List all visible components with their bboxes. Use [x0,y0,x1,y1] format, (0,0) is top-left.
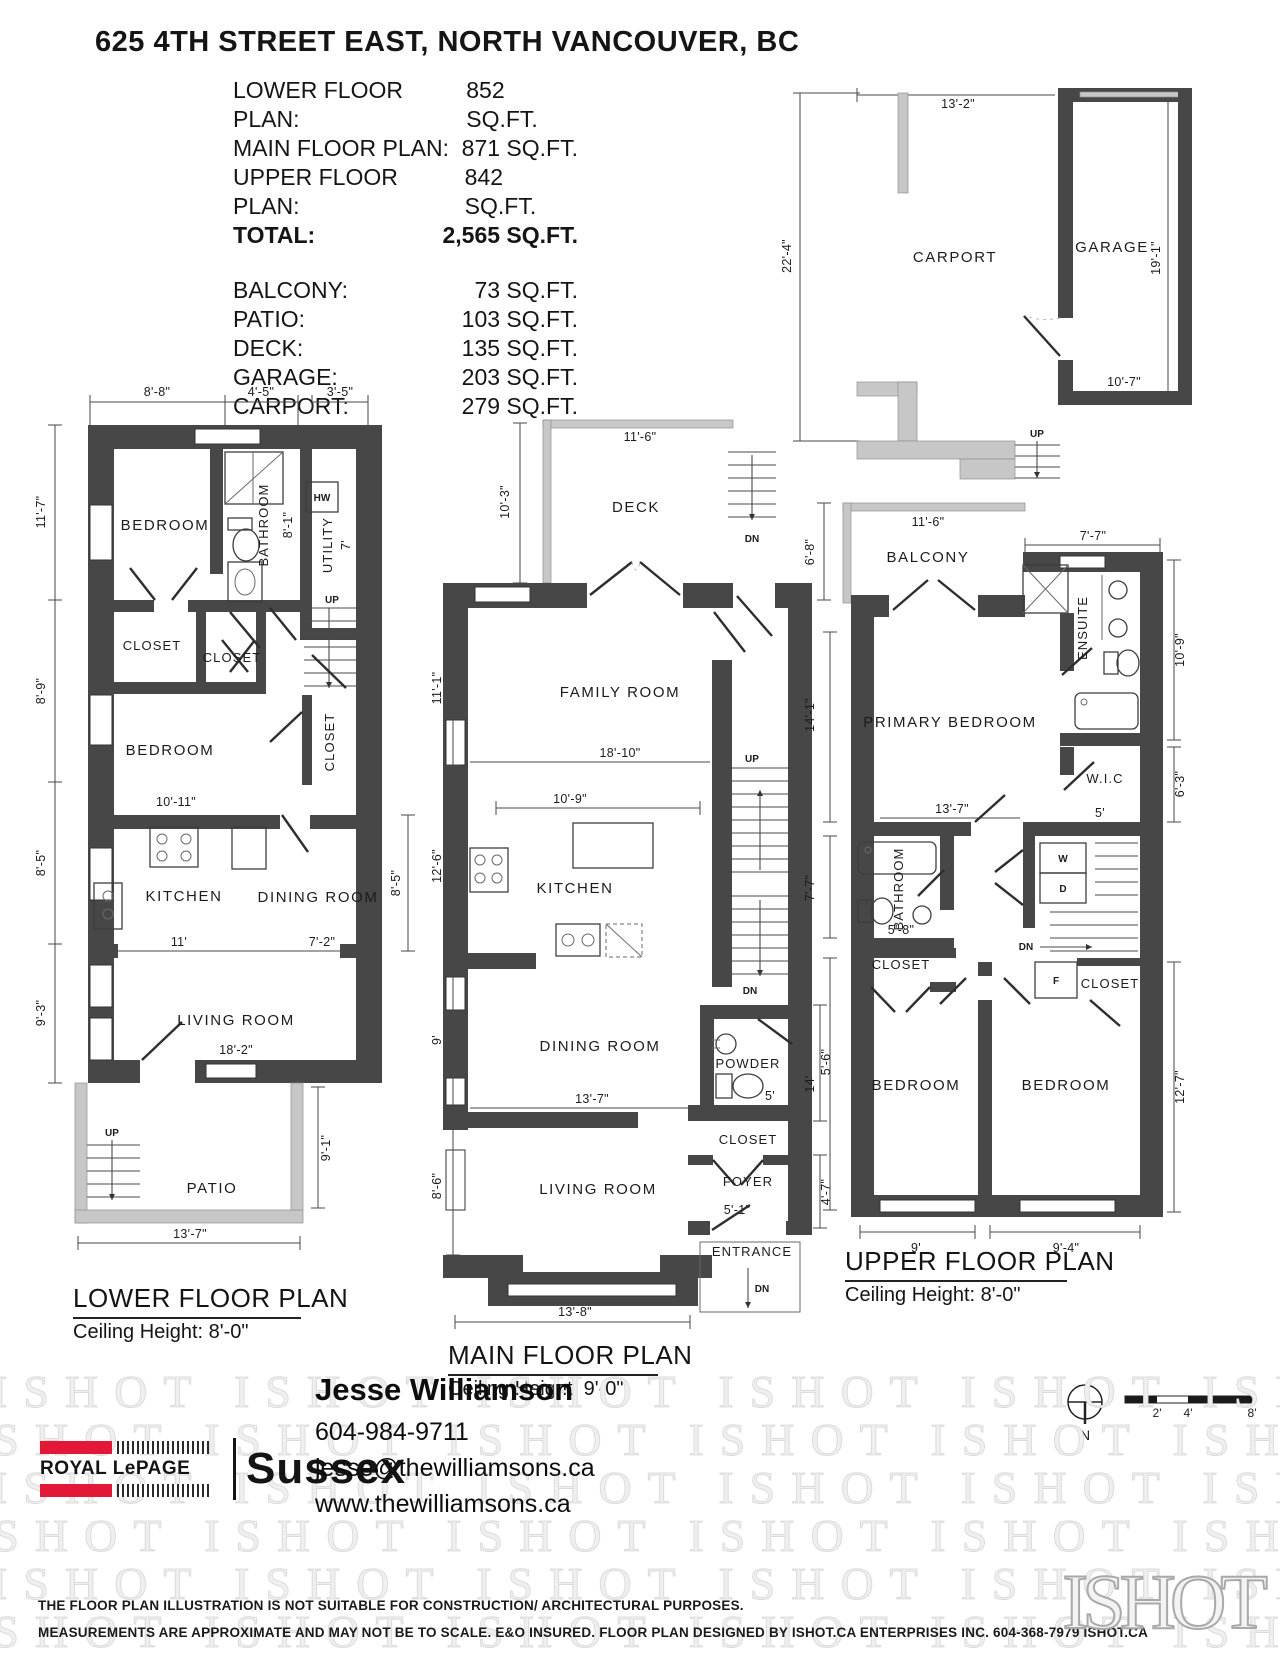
stat-label: UPPER FLOOR PLAN: [233,163,465,221]
stat-value: 73 SQ.FT. [474,276,578,305]
stat-row: BALCONY:73 SQ.FT. [233,276,578,305]
ceiling-height: Ceiling Height: 8'-0" [845,1284,1067,1307]
room-label: PRIMARY BEDROOM [863,714,1036,731]
logo-red-bar [40,1440,225,1455]
dim: 8'-6" [430,1173,444,1199]
stat-row: DECK:135 SQ.FT. [233,334,578,363]
stat-label: LOWER FLOOR PLAN: [233,76,466,134]
agent-website[interactable]: www.thewilliamsons.ca [315,1486,595,1522]
room-label: UTILITY [320,517,335,573]
garage-up-label: UP [1030,429,1044,440]
stat-label: DECK: [233,334,303,363]
logo-divider [233,1438,236,1500]
lower-floor-plan: 8'-8" 4'-5" 3'-5" 11'-7" 8'-9" 8'-5" 9'-… [20,375,440,1335]
area-summary: LOWER FLOOR PLAN:852 SQ.FT. MAIN FLOOR P… [233,76,578,421]
logo-red-bar [40,1483,225,1498]
room-label: CLOSET [1081,976,1140,991]
room-label: DINING ROOM [540,1038,661,1055]
plan-title: MAIN FLOOR PLAN [448,1340,658,1371]
dim: 10'-11" [156,795,196,809]
dim: 7'-2" [309,935,335,949]
room-label: KITCHEN [145,888,222,905]
carport-label: CARPORT [913,249,997,266]
stat-label: BALCONY: [233,276,348,305]
disclaimer: THE FLOOR PLAN ILLUSTRATION IS NOT SUITA… [38,1592,1148,1646]
stat-value: 103 SQ.FT. [462,305,578,334]
stat-value: 852 SQ.FT. [466,76,578,134]
dim: 11'-7" [34,496,48,529]
room-label: DECK [612,499,660,516]
watermark-text: ISHOT ISHOT ISHOT ISHOT ISHOT ISHOT ISHO… [0,1512,1280,1560]
garage-width-dim: 10'-7" [1107,375,1141,389]
dim: 6'-3" [1173,771,1187,797]
furnace-label: F [1053,976,1059,987]
dim: 4'-5" [248,385,274,399]
stat-value: 2,565 SQ.FT. [442,221,578,250]
patio-up-label: UP [105,1128,119,1139]
room-label: CLOSET [872,957,931,972]
washer-label: W [1058,854,1068,865]
disclaimer-line-2: MEASUREMENTS ARE APPROXIMATE AND MAY NOT… [38,1619,1148,1646]
floor-plan-sheet: 625 4TH STREET EAST, NORTH VANCOUVER, BC… [0,0,1280,1657]
room-label: ENSUITE [1075,596,1090,660]
dim: 7'-7" [1080,529,1106,543]
dim: 6'-8" [803,539,817,565]
upper-dn-label: DN [1019,942,1033,953]
dim: 12'-6" [430,849,444,883]
dim: 11'-6" [912,515,945,529]
upper-floor-plan: 11'-6" BALCONY 6'-8" 7'-7" [795,495,1245,1315]
room-label: ENTRANCE [712,1244,792,1259]
plan-title: LOWER FLOOR PLAN [73,1283,301,1314]
dim: 13'-7" [173,1227,207,1241]
stat-value: 135 SQ.FT. [462,334,578,363]
dim: 7' [339,540,353,550]
room-label: CLOSET [123,638,182,653]
stat-label: MAIN FLOOR PLAN: [233,134,449,163]
room-label: BATHROOM [256,484,271,567]
dim: 13'-7" [935,802,969,816]
brokerage-name: ROYAL LePAGE [40,1457,225,1481]
dim: 5' [765,1089,775,1103]
dim: 13'-8" [558,1305,592,1319]
stat-row: PATIO:103 SQ.FT. [233,305,578,334]
dim: 5'-8" [888,923,914,937]
dryer-label: D [1059,884,1066,895]
room-label: FOYER [723,1174,773,1189]
room-label: BATHROOM [891,848,906,931]
upper-plan-caption: UPPER FLOOR PLAN Ceiling Height: 8'-0" [845,1246,1067,1307]
room-label: BEDROOM [126,742,215,759]
dim: 11'-1" [430,672,444,705]
room-label: KITCHEN [536,880,613,897]
room-label: LIVING ROOM [177,1012,295,1029]
carport-depth-dim: 22'-4" [780,239,794,273]
dim: 11'-6" [624,430,657,444]
dim: 8'-5" [389,870,403,896]
room-label: BALCONY [887,549,970,566]
carport-width-dim: 13'-2" [941,97,975,111]
room-label: BEDROOM [121,517,210,534]
dim: 12'-7" [1173,1070,1187,1104]
watermark-text: ISHOT ISHOT ISHOT ISHOT ISHOT ISHOT ISHO… [0,1368,1280,1416]
lower-up-label: UP [325,595,339,606]
room-label: FAMILY ROOM [560,684,680,701]
main-floor-plan: 11'-6" DECK 10'-3" DN UP [430,385,840,1335]
plan-title: UPPER FLOOR PLAN [845,1246,1067,1277]
dim: 3'-5" [327,385,353,399]
dim: 10'-9" [553,792,587,806]
stat-label: PATIO: [233,305,305,334]
dim: 11' [171,935,187,949]
deck-dn-label: DN [745,534,759,545]
dim: 14'-1" [803,698,817,732]
ceiling-height: Ceiling Height: 8'-0" [73,1321,301,1344]
hw-tank-label: HW [314,493,331,504]
ishot-logo: ISHOT [1062,1563,1262,1641]
room-label: CLOSET [203,650,262,665]
stat-row-total: TOTAL:2,565 SQ.FT. [233,221,578,250]
dim: 10'-3" [498,485,512,519]
room-label: CLOSET [719,1132,778,1147]
room-label: BEDROOM [1022,1077,1111,1094]
stairs-dn-label: DN [743,986,757,997]
dim: 5' [1095,806,1105,820]
stat-row: UPPER FLOOR PLAN:842 SQ.FT. [233,163,578,221]
dim: 9'-1" [319,1135,333,1161]
dim: 9'-3" [34,1000,48,1026]
room-label: CLOSET [322,713,337,772]
stat-row: MAIN FLOOR PLAN:871 SQ.FT. [233,134,578,163]
agent-info: Jesse Williamson 604-984-9711 jesse@thew… [315,1372,595,1522]
dim: 8'-5" [34,850,48,876]
room-label: W.I.C [1086,771,1123,786]
room-label: PATIO [187,1180,238,1197]
agent-name: Jesse Williamson [315,1372,595,1408]
dim: 7'-7" [803,875,817,901]
dim: 8'-1" [281,512,295,538]
lower-plan-caption: LOWER FLOOR PLAN Ceiling Height: 8'-0" [73,1283,301,1344]
garage-depth-dim: 19'-1" [1149,241,1163,275]
room-label: BEDROOM [872,1077,961,1094]
stat-label: TOTAL: [233,221,315,250]
agent-email[interactable]: jesse@thewilliamsons.ca [315,1450,595,1486]
page-title: 625 4TH STREET EAST, NORTH VANCOUVER, BC [95,26,799,59]
dim: 18'-2" [219,1043,253,1057]
dim: 18'-10" [600,746,641,760]
stat-value: 871 SQ.FT. [462,134,578,163]
room-label: POWDER [715,1056,780,1071]
dim: 8'-9" [34,678,48,704]
dim: 10'-9" [1173,633,1187,667]
room-label: LIVING ROOM [539,1181,657,1198]
dim: 14' [803,1075,817,1092]
dim: 13'-7" [575,1092,609,1106]
room-label: DINING ROOM [258,889,379,906]
stat-value: 842 SQ.FT. [465,163,578,221]
dim: 9' [430,1035,444,1045]
dim: 8'-8" [144,385,170,399]
garage-label: GARAGE [1075,239,1149,256]
stat-row: LOWER FLOOR PLAN:852 SQ.FT. [233,76,578,134]
stairs-up-label: UP [745,754,759,765]
disclaimer-line-1: THE FLOOR PLAN ILLUSTRATION IS NOT SUITA… [38,1592,1148,1619]
entry-dn-label: DN [755,1284,769,1295]
agent-phone: 604-984-9711 [315,1414,595,1450]
